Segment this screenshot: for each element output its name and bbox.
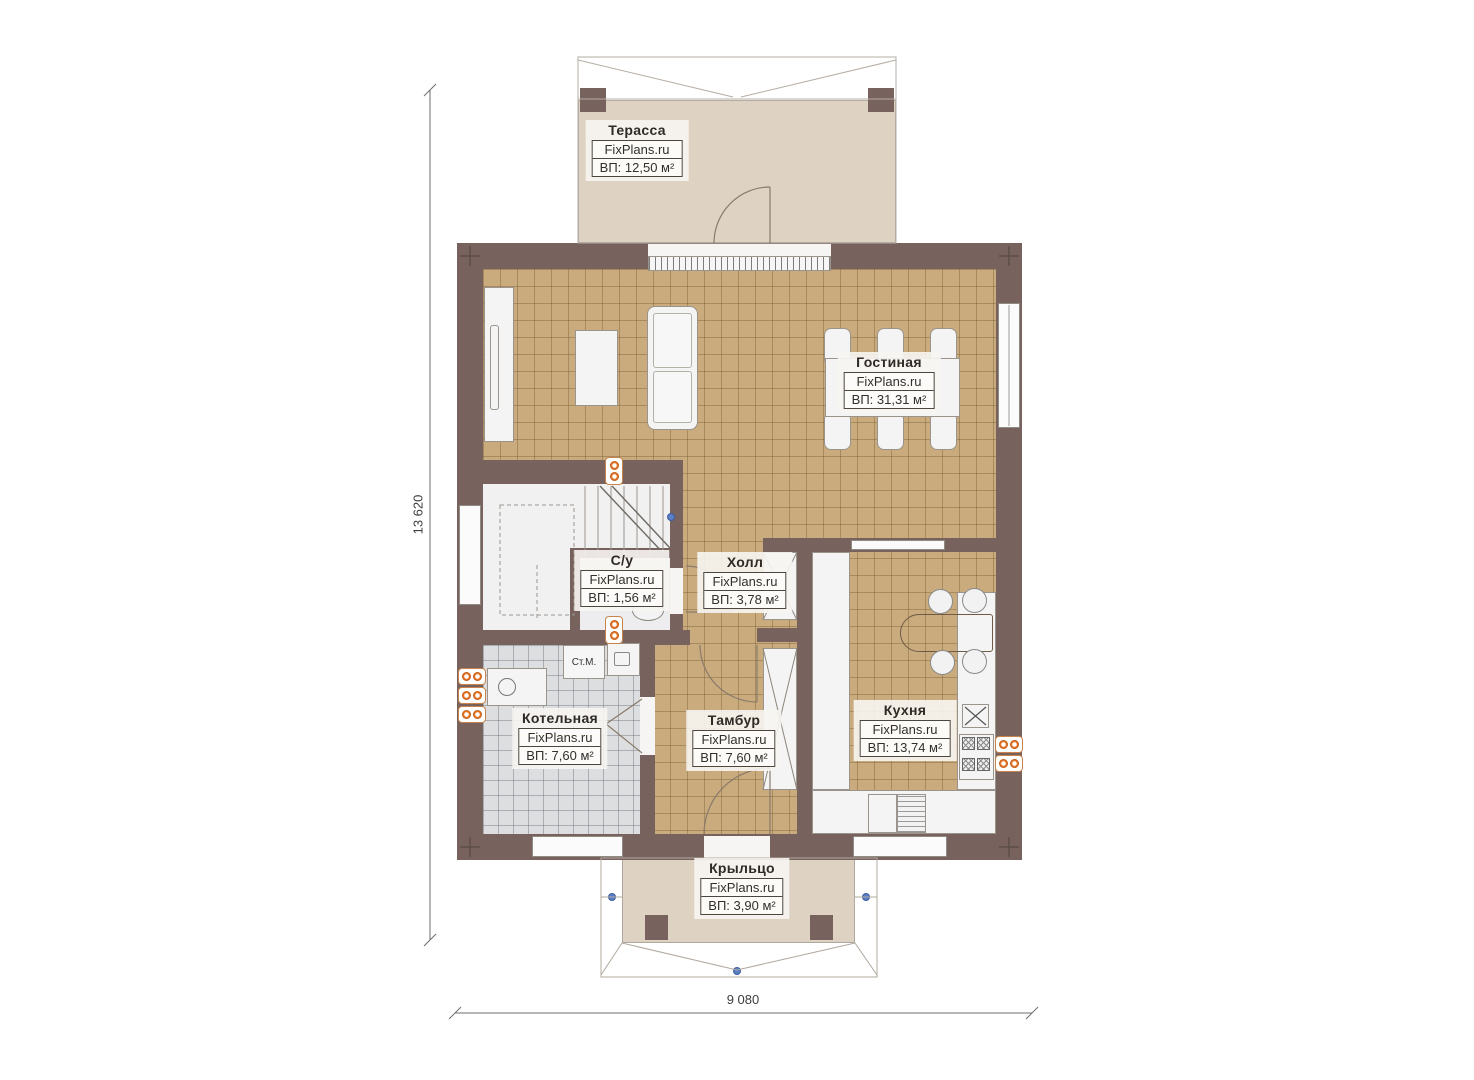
room-area: ВП: 1,56 м² [581, 588, 662, 606]
floor-plan: Ст.М. [0, 0, 1474, 1080]
kitchen-sink-drainer [897, 794, 926, 833]
room-name: Гостиная [844, 354, 935, 370]
tv-set [490, 325, 499, 410]
room-name: Кухня [860, 702, 951, 718]
boiler-counter [487, 668, 547, 706]
washing-machine: Ст.М. [563, 645, 605, 679]
tv-cabinet [484, 287, 514, 442]
dimension-vertical: 13 620 [411, 485, 426, 545]
room-area: ВП: 3,90 м² [701, 896, 782, 914]
radiator [458, 706, 486, 723]
wall-living-stairs [457, 460, 683, 484]
room-name: Тамбур [692, 712, 775, 728]
room-area: ВП: 12,50 м² [593, 158, 682, 176]
room-label-terrace: Терасса FixPlans.ru ВП: 12,50 м² [586, 120, 689, 181]
coffee-table [575, 330, 618, 406]
window-bottom-boiler [532, 836, 623, 857]
brand-watermark: FixPlans.ru [581, 571, 662, 588]
door-gap-boiler [640, 697, 655, 755]
radiator [605, 616, 623, 644]
brand-watermark: FixPlans.ru [519, 729, 600, 746]
room-label-boiler: Котельная FixPlans.ru ВП: 7,60 м² [512, 708, 607, 769]
burner-icon [962, 737, 975, 750]
brand-watermark: FixPlans.ru [701, 879, 782, 896]
brand-watermark: FixPlans.ru [704, 573, 785, 590]
brand-watermark: FixPlans.ru [693, 731, 774, 748]
room-name: Терасса [592, 122, 683, 138]
room-name: Холл [703, 554, 786, 570]
bar-stool [930, 650, 955, 675]
radiator [458, 687, 486, 704]
brand-watermark: FixPlans.ru [593, 141, 682, 158]
radiator [995, 736, 1023, 753]
radiator [995, 755, 1023, 772]
terrace-door-opening [648, 244, 831, 256]
terrace-pillar-right [868, 88, 894, 112]
window-bottom-kitchen [853, 836, 947, 857]
survey-marker [608, 893, 616, 901]
window-left [459, 505, 481, 605]
burner-icon [977, 758, 990, 771]
room-label-kitchen: Кухня FixPlans.ru ВП: 13,74 м² [854, 700, 957, 761]
burner-icon [977, 737, 990, 750]
bar-table [900, 614, 993, 652]
survey-marker [667, 513, 675, 521]
boiler-sink-bowl [614, 652, 630, 666]
radiator [605, 457, 623, 485]
room-label-hall: Холл FixPlans.ru ВП: 3,78 м² [697, 552, 792, 613]
sofa-cushion [653, 313, 692, 368]
kitchen-counter-left [812, 552, 850, 790]
room-area: ВП: 13,74 м² [861, 738, 950, 756]
door-gap-su [670, 568, 683, 614]
brand-watermark: FixPlans.ru [845, 373, 934, 390]
dining-chair [877, 412, 904, 450]
room-area: ВП: 7,60 м² [693, 748, 774, 766]
survey-marker [862, 893, 870, 901]
wall-kitchen-vertical [797, 552, 812, 834]
bar-stool [962, 588, 987, 613]
room-area: ВП: 3,78 м² [704, 590, 785, 608]
wall-mid-horizontal [457, 630, 690, 645]
room-label-living: Гостиная FixPlans.ru ВП: 31,31 м² [838, 352, 941, 413]
burner-icon [962, 758, 975, 771]
room-name: С/у [580, 552, 663, 568]
dining-chair [824, 412, 851, 450]
room-label-tambur: Тамбур FixPlans.ru ВП: 7,60 м² [686, 710, 781, 771]
terrace-threshold [648, 256, 831, 271]
porch-door-opening [704, 836, 770, 858]
stove [959, 734, 994, 780]
sofa-cushion [653, 371, 692, 423]
bar-stool [928, 589, 953, 614]
survey-marker [733, 967, 741, 975]
kitchen-sink-x [962, 704, 989, 728]
room-label-porch: Крыльцо FixPlans.ru ВП: 3,90 м² [694, 858, 789, 919]
porch-pillar-left [645, 915, 668, 940]
washing-machine-label: Ст.М. [572, 657, 597, 668]
window-right [998, 303, 1020, 428]
room-area: ВП: 7,60 м² [519, 746, 600, 764]
dimension-horizontal: 9 080 [703, 992, 783, 1007]
bar-stool [962, 649, 987, 674]
kitchen-passthrough [851, 540, 945, 550]
porch-pillar-right [810, 915, 833, 940]
boiler-sink-round [498, 678, 516, 696]
terrace-pillar-left [580, 88, 606, 112]
radiator [458, 668, 486, 685]
room-name: Крыльцо [700, 860, 783, 876]
dining-chair [930, 412, 957, 450]
room-label-su: С/у FixPlans.ru ВП: 1,56 м² [574, 550, 669, 611]
room-name: Котельная [518, 710, 601, 726]
kitchen-sink-basin [868, 794, 897, 833]
brand-watermark: FixPlans.ru [861, 721, 950, 738]
room-area: ВП: 31,31 м² [845, 390, 934, 408]
